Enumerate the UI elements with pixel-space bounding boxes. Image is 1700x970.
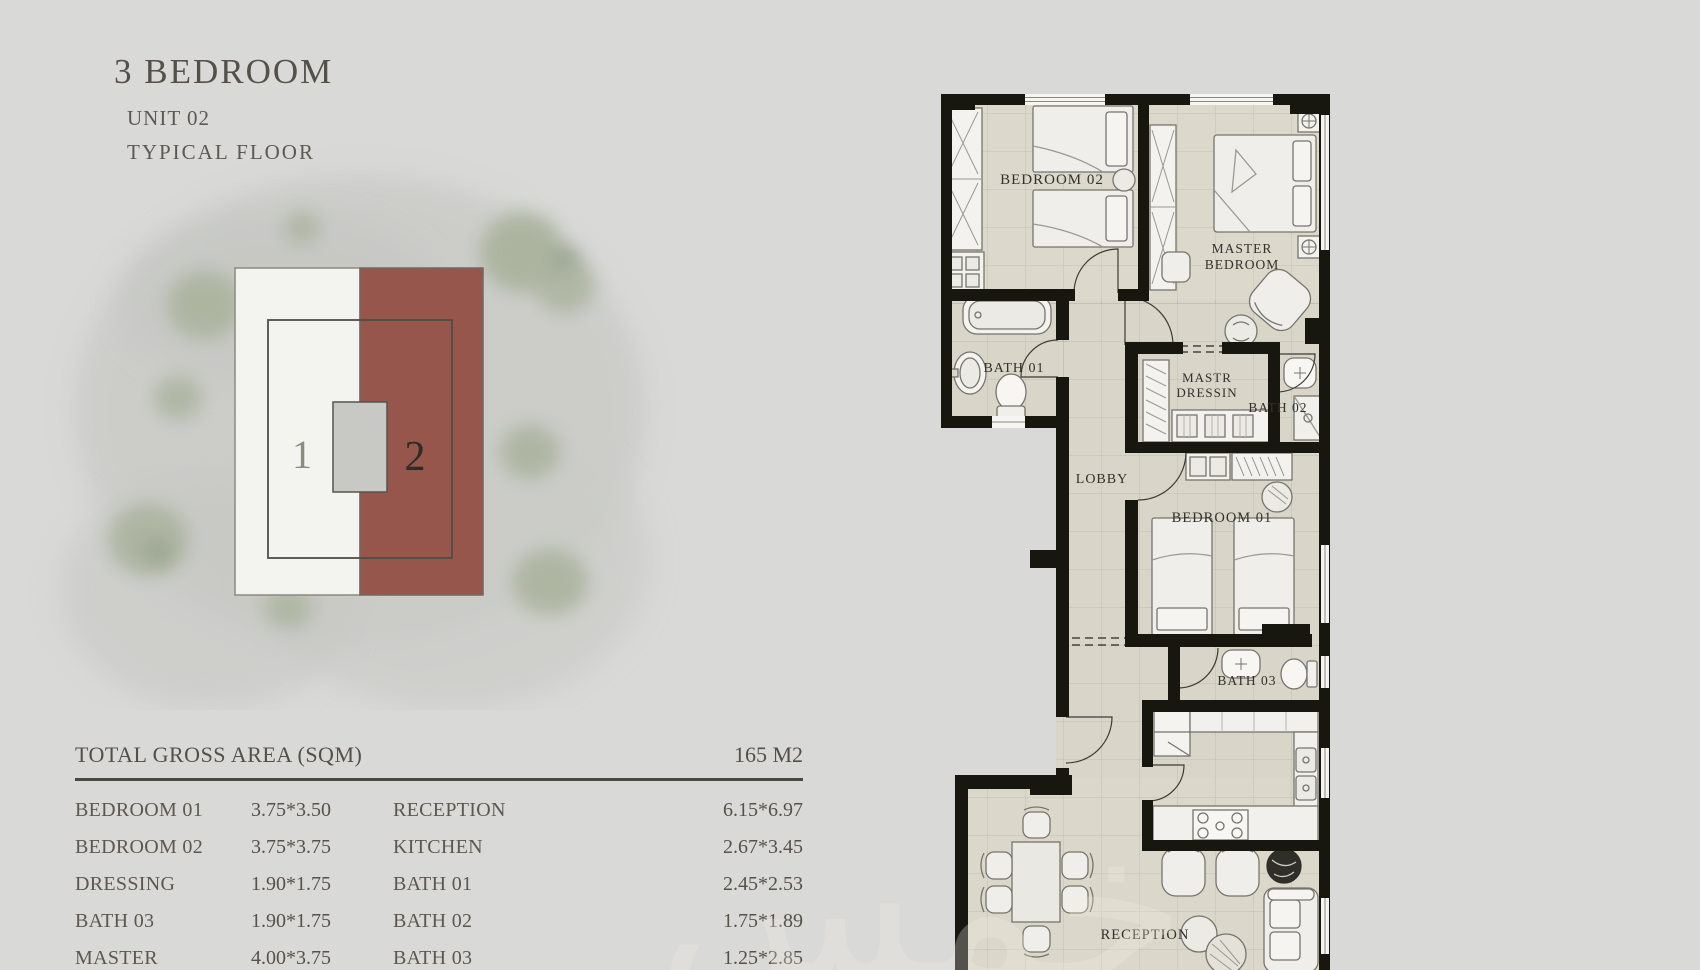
window	[1321, 748, 1329, 798]
area-row: BATH 02 1.75*1.89	[393, 910, 803, 932]
room-label-master-dressing: DRESSIN	[1176, 385, 1237, 400]
sofa-icon	[1264, 888, 1318, 970]
building-2-label: 2	[405, 434, 426, 480]
window	[1025, 94, 1105, 105]
room-name: BATH 02	[393, 910, 472, 932]
area-table-header: TOTAL GROSS AREA (SQM) 165 M2	[75, 742, 803, 768]
toilet-icon	[996, 374, 1026, 419]
window	[1321, 115, 1329, 250]
mirror-icon	[1262, 482, 1292, 512]
building-core	[333, 402, 387, 492]
area-table-right-column: RECEPTION 6.15*6.97 KITCHEN 2.67*3.45 BA…	[393, 799, 803, 970]
area-row: BATH 03 1.90*1.75	[75, 910, 331, 932]
room-dimensions: 1.90*1.75	[251, 910, 331, 932]
page-title: 3 BEDROOM	[114, 52, 333, 92]
room-label-bedroom-02: BEDROOM 02	[1000, 172, 1104, 188]
bed-icon	[1033, 106, 1133, 172]
room-dimensions: 1.90*1.75	[251, 873, 331, 895]
area-row: BATH 03 1.25*2.85	[393, 947, 803, 969]
plant-icon	[1206, 934, 1246, 970]
window	[992, 416, 1025, 428]
room-name: BEDROOM 02	[75, 836, 203, 858]
toilet-icon	[1281, 659, 1317, 689]
room-dimensions: 1.75*1.89	[723, 910, 803, 932]
area-row: KITCHEN 2.67*3.45	[393, 836, 803, 858]
bed-icon	[1234, 518, 1294, 635]
stove-icon	[1193, 810, 1248, 840]
room-dimensions: 3.75*3.75	[251, 836, 331, 858]
room-name: BATH 03	[75, 910, 154, 932]
floor-plan: BEDROOM 02 MASTER BEDROOM BATH 01 MASTR …	[935, 85, 1340, 970]
nightstand-icon	[1298, 236, 1320, 258]
tree-icon	[144, 540, 172, 564]
window	[1190, 94, 1273, 105]
building-footprint: 1 2	[235, 268, 483, 595]
room-label-bath-01: BATH 01	[983, 361, 1044, 376]
area-row: BEDROOM 02 3.75*3.75	[75, 836, 331, 858]
room-name: BATH 01	[393, 873, 472, 895]
room-name: KITCHEN	[393, 836, 483, 858]
area-row: BEDROOM 01 3.75*3.50	[75, 799, 331, 821]
building-1-label: 1	[292, 432, 312, 477]
fridge-icon	[1154, 708, 1190, 756]
area-table-left-column: BEDROOM 01 3.75*3.50 BEDROOM 02 3.75*3.7…	[75, 799, 331, 970]
room-name: MASTER BEDROOM	[75, 947, 251, 970]
room-dimensions: 1.25*2.85	[723, 947, 803, 969]
tree-icon	[512, 549, 588, 615]
area-table: TOTAL GROSS AREA (SQM) 165 M2 BEDROOM 01…	[75, 742, 803, 970]
site-plan: 1 2	[30, 130, 690, 710]
plant-icon	[1267, 849, 1301, 883]
room-name: BEDROOM 01	[75, 799, 203, 821]
room-label-master-bedroom: MASTER	[1212, 241, 1273, 256]
bed-icon	[1214, 135, 1316, 232]
room-label-lobby: LOBBY	[1076, 472, 1128, 487]
tree-icon	[167, 271, 243, 339]
armchair-icon	[1162, 848, 1205, 896]
room-label-bath-03: BATH 03	[1217, 673, 1276, 688]
bench-icon	[1162, 252, 1190, 282]
room-label-bath-02: BATH 02	[1248, 400, 1307, 415]
sink-icon	[1284, 358, 1316, 388]
room-dimensions: 6.15*6.97	[723, 799, 803, 821]
bathtub-icon	[963, 296, 1051, 334]
tree-icon	[552, 246, 580, 270]
stool-icon	[1113, 169, 1135, 191]
area-row: DRESSING 1.90*1.75	[75, 873, 331, 895]
room-label-reception: RECEPTION	[1101, 927, 1190, 943]
window	[1321, 656, 1329, 688]
room-label-bedroom-01: BEDROOM 01	[1172, 510, 1273, 526]
closet-icon	[1186, 453, 1230, 480]
unit-subtitle: UNIT 02	[127, 106, 333, 131]
bed-icon	[1152, 518, 1212, 635]
room-dimensions: 2.67*3.45	[723, 836, 803, 858]
room-label-master-bedroom: BEDROOM	[1205, 257, 1280, 272]
tree-icon	[284, 212, 320, 244]
bed-icon	[1033, 190, 1133, 247]
area-row: RECEPTION 6.15*6.97	[393, 799, 803, 821]
area-row: MASTER BEDROOM 4.00*3.75	[75, 947, 331, 970]
room-name: RECEPTION	[393, 799, 506, 821]
room-dimensions: 2.45*2.53	[723, 873, 803, 895]
tree-icon	[108, 504, 188, 576]
room-name: BATH 03	[393, 947, 472, 969]
window	[1321, 545, 1329, 623]
area-table-title: TOTAL GROSS AREA (SQM)	[75, 742, 362, 768]
tree-icon	[154, 376, 202, 420]
page-background: 3 BEDROOM UNIT 02 TYPICAL FLOOR	[0, 0, 1700, 970]
closet-icon	[1143, 360, 1169, 442]
room-dimensions: 3.75*3.50	[251, 799, 331, 821]
dining-table-icon	[1012, 842, 1060, 922]
armchair-icon	[1216, 848, 1259, 896]
window	[1321, 898, 1329, 954]
area-row: BATH 01 2.45*2.53	[393, 873, 803, 895]
room-dimensions: 4.00*3.75	[251, 947, 331, 970]
room-name: DRESSING	[75, 873, 175, 895]
total-area-value: 165 M2	[734, 742, 803, 768]
closet-icon	[1232, 453, 1292, 480]
room-label-master-dressing: MASTR	[1182, 370, 1232, 385]
table-divider	[75, 778, 803, 781]
tree-icon	[500, 425, 560, 479]
